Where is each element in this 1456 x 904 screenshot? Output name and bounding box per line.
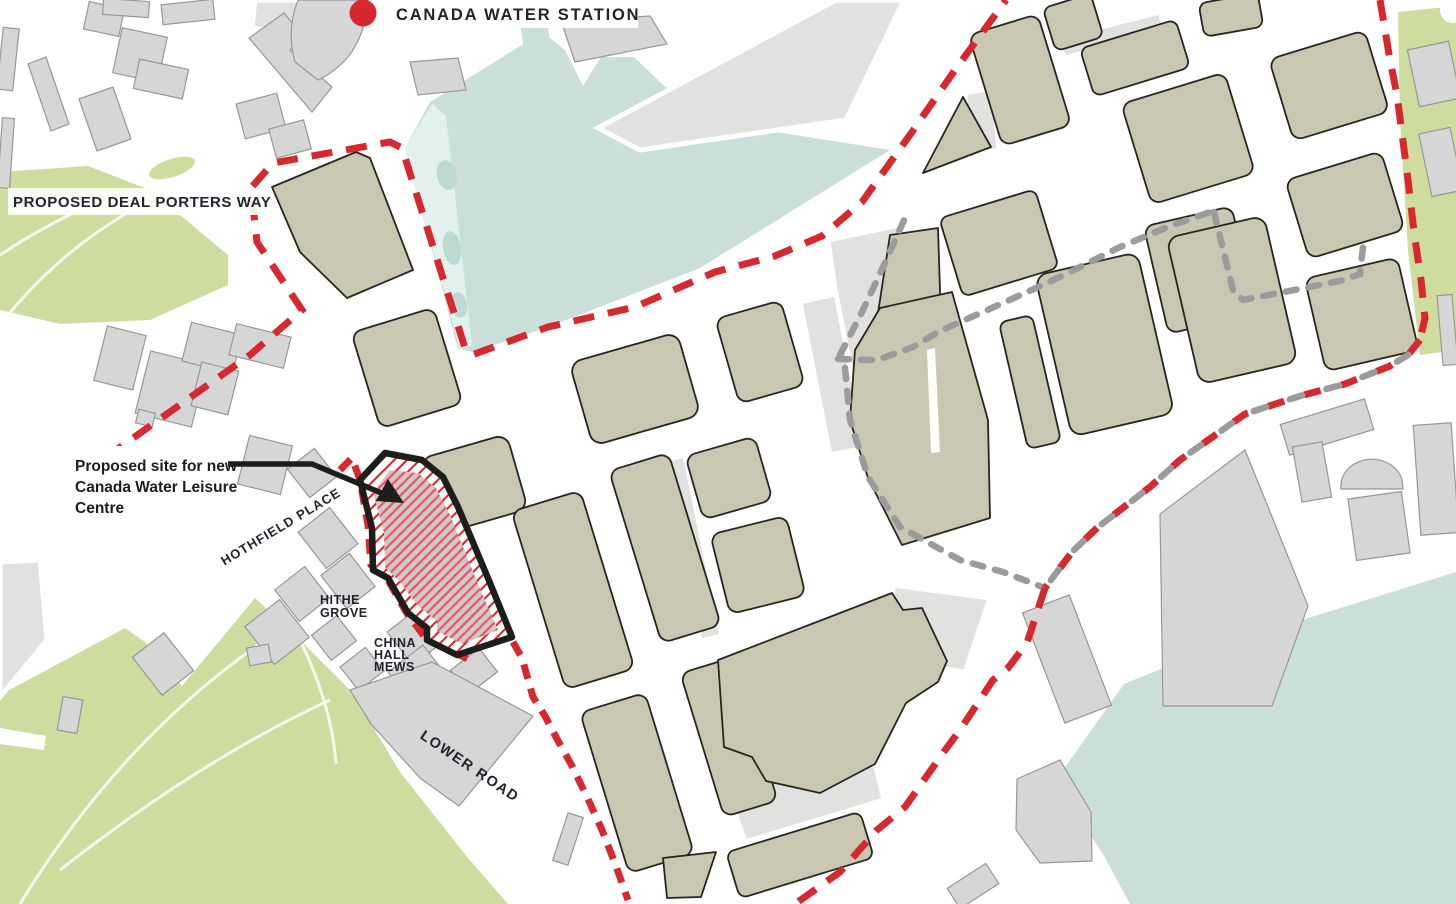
station-marker-icon: [350, 0, 377, 27]
annotation-line-1: Proposed site for new: [75, 458, 238, 475]
masterplan-map: Proposed site for new Canada Water Leisu…: [0, 0, 1456, 904]
annotation-line-2: Canada Water Leisure: [75, 479, 238, 496]
deal-porters-way-label: PROPOSED DEAL PORTERS WAY: [13, 194, 271, 211]
map-canvas: Proposed site for new Canada Water Leisu…: [0, 0, 1456, 904]
station-label: CANADA WATER STATION: [396, 6, 640, 24]
hithe-grove-label-1: HITHE: [320, 593, 360, 607]
dome-building: [1341, 459, 1403, 489]
annotation-line-3: Centre: [75, 500, 124, 517]
china-hall-mews-label-3: MEWS: [374, 660, 415, 674]
site-annotation: Proposed site for new Canada Water Leisu…: [68, 446, 404, 530]
hithe-grove-label-2: GROVE: [320, 606, 368, 620]
